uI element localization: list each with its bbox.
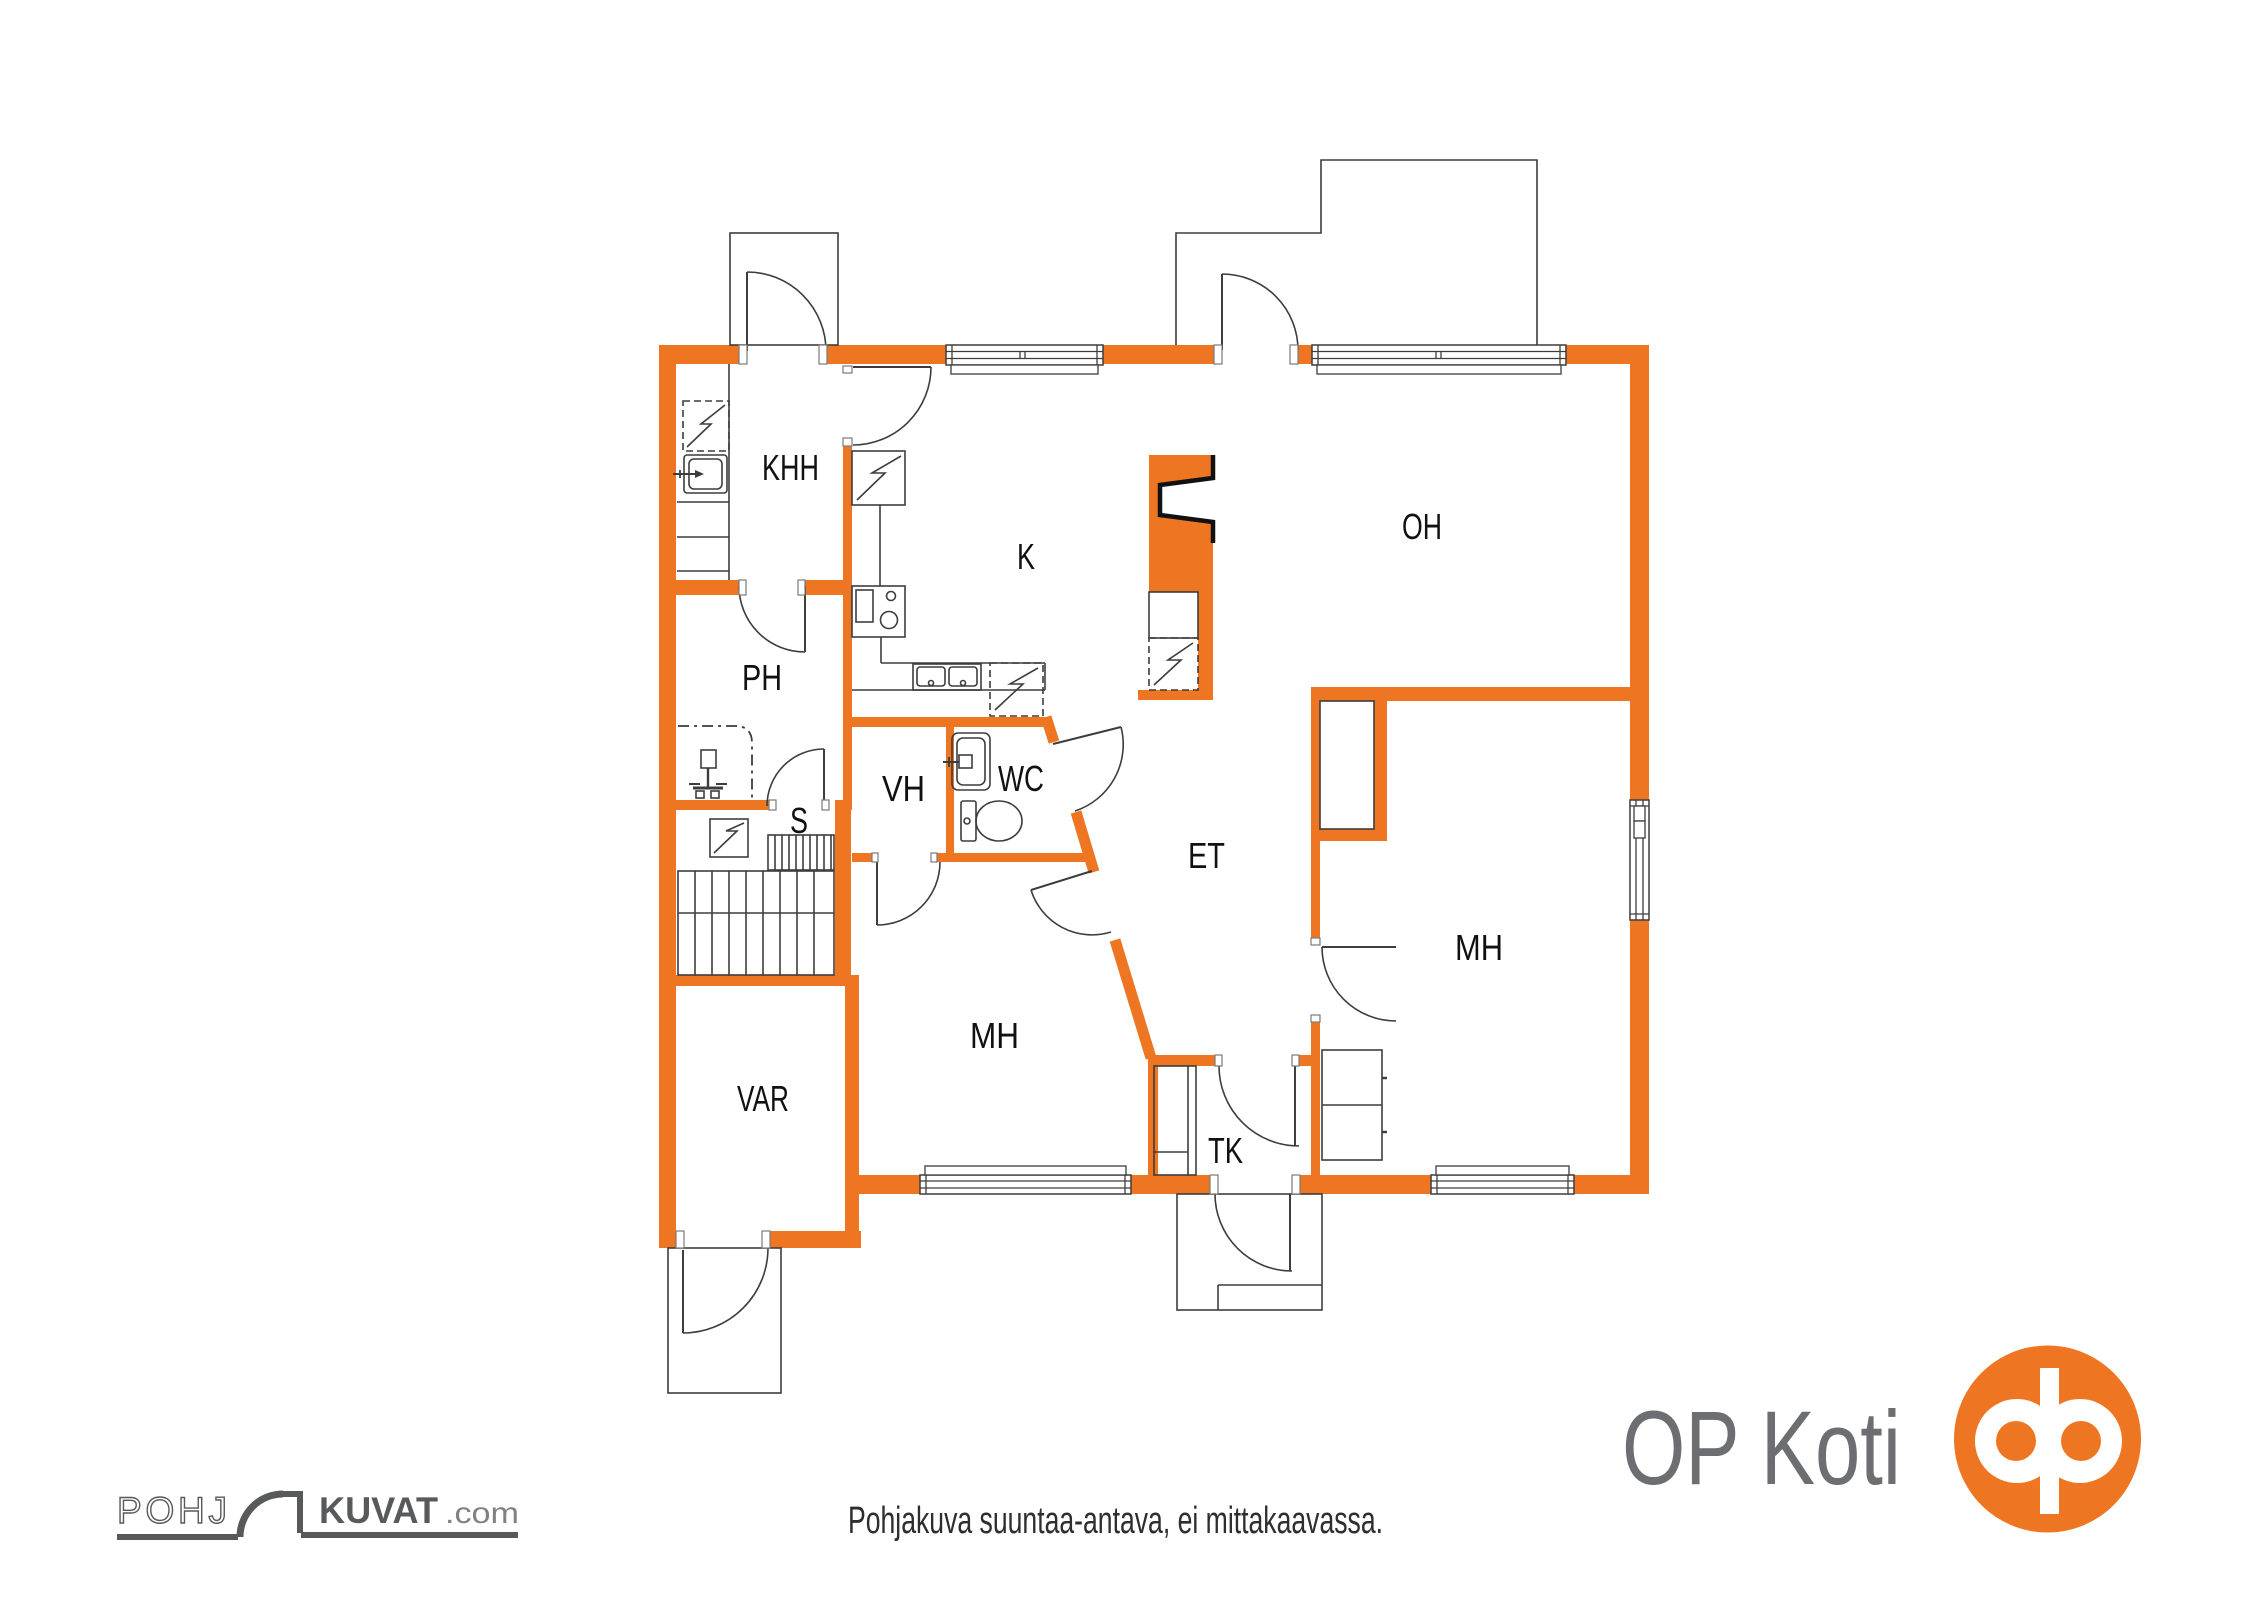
svg-text:.com: .com	[445, 1497, 519, 1530]
svg-text:WC: WC	[998, 758, 1044, 799]
svg-text:MH: MH	[1455, 927, 1503, 968]
svg-text:KUVAT: KUVAT	[319, 1490, 438, 1531]
svg-text:OP Koti: OP Koti	[1622, 1390, 1901, 1507]
svg-text:OH: OH	[1402, 506, 1442, 547]
svg-text:MH: MH	[970, 1015, 1019, 1056]
svg-text:PH: PH	[742, 657, 782, 698]
svg-text:KHH: KHH	[762, 447, 819, 488]
svg-text:ET: ET	[1188, 835, 1225, 876]
svg-text:TK: TK	[1208, 1130, 1243, 1171]
svg-text:K: K	[1017, 536, 1035, 577]
svg-text:VH: VH	[882, 768, 925, 809]
svg-text:S: S	[790, 800, 808, 841]
svg-text:POHJ: POHJ	[117, 1490, 232, 1531]
svg-text:Pohjakuva suuntaa-antava, ei m: Pohjakuva suuntaa-antava, ei mittakaavas…	[848, 1500, 1383, 1542]
svg-text:VAR: VAR	[737, 1078, 789, 1119]
